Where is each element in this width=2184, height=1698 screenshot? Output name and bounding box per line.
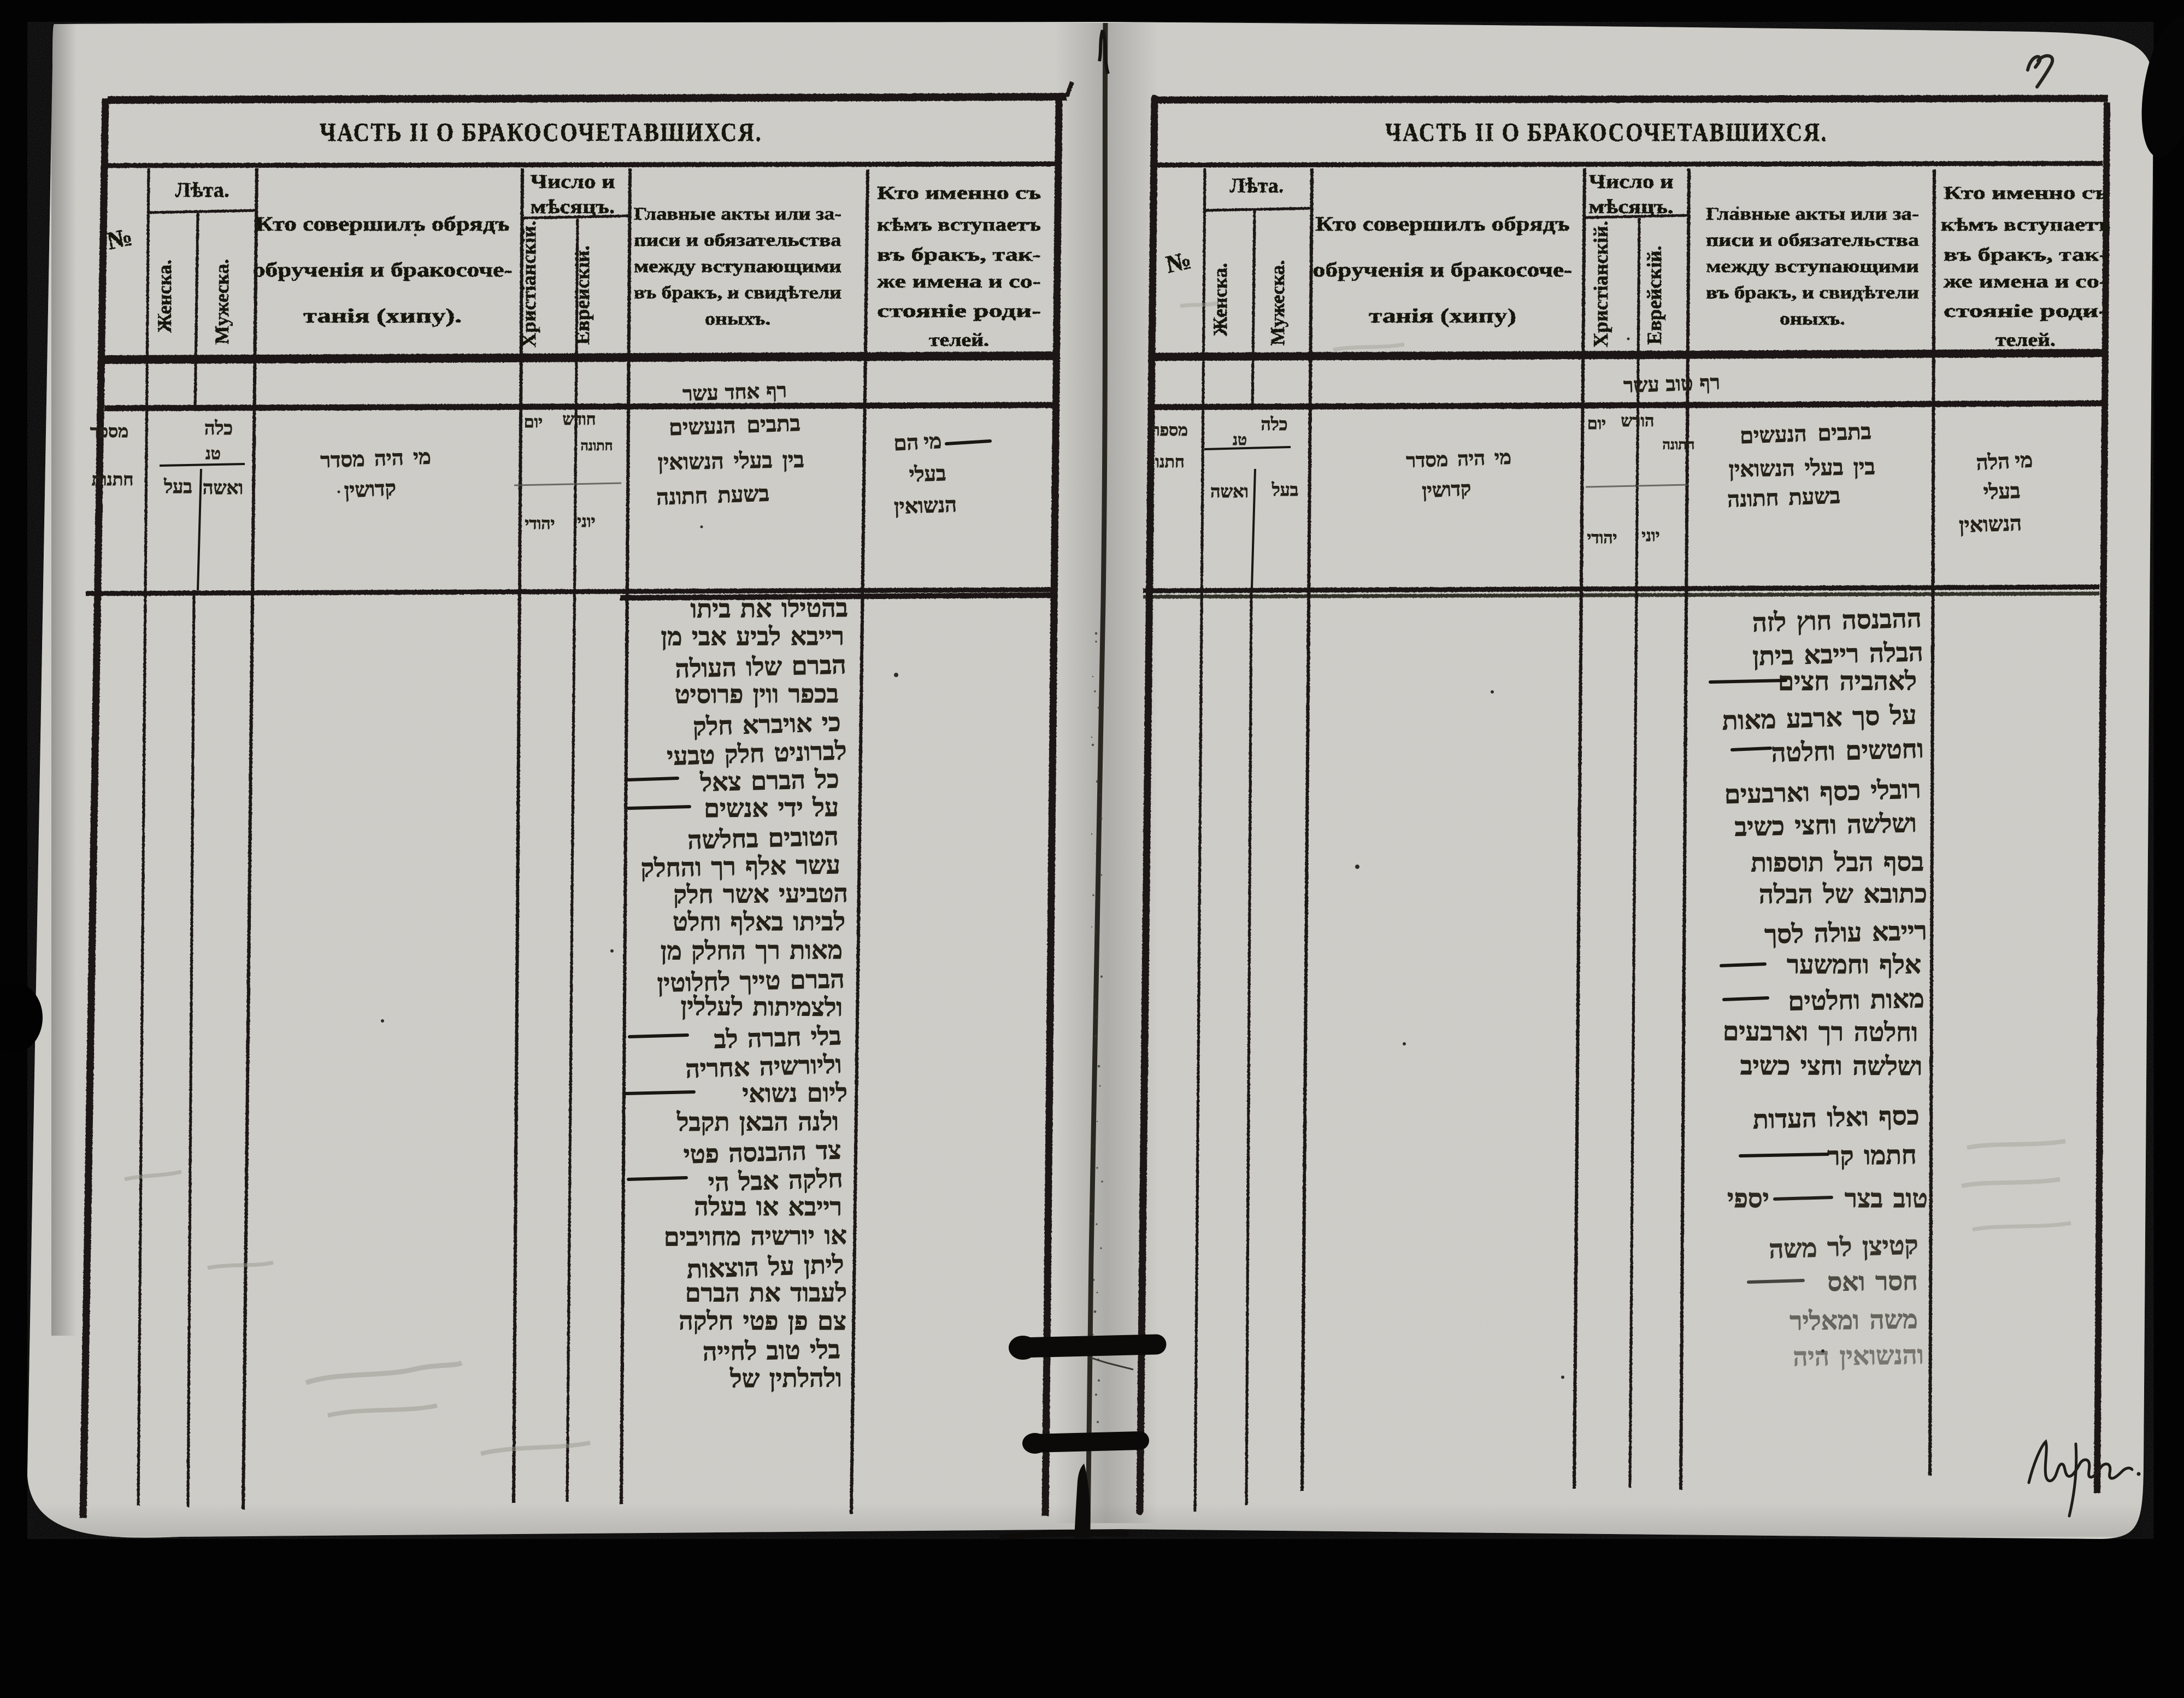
svg-text:כי אויברא חלק: כי אויברא חלק — [692, 708, 841, 741]
svg-text:Христіанскій.: Христіанскій. — [1590, 221, 1612, 348]
svg-text:בשעת חתונה: בשעת חתונה — [656, 481, 769, 509]
svg-text:בתבים הנעשים: בתבים הנעשים — [668, 411, 800, 440]
svg-text:לביתו באלף וחלט: לביתו באלף וחלט — [673, 908, 845, 936]
svg-text:כסף ואלו העדות: כסף ואלו העדות — [1752, 1102, 1920, 1135]
svg-text:между вступающими: между вступающими — [634, 257, 841, 277]
svg-text:танія (хипу): танія (хипу) — [1369, 305, 1516, 327]
svg-text:רובלי כסף וארבעים: רובלי כסף וארבעים — [1724, 775, 1921, 809]
svg-text:קדושין: קדושין — [1421, 478, 1471, 502]
svg-text:въ бракъ, и свидѣтели: въ бракъ, и свидѣтели — [634, 283, 841, 303]
svg-text:חתונה: חתונה — [1663, 438, 1695, 453]
svg-text:יהודי: יהודי — [1587, 529, 1617, 547]
svg-text:יספי: יספי — [1727, 1185, 1769, 1213]
svg-text:רייבא לביע אבי מן: רייבא לביע אבי מן — [661, 622, 844, 651]
svg-text:מאות רך החלק מן: מאות רך החלק מן — [661, 936, 843, 965]
svg-text:בלי טוב לחייה: בלי טוב לחייה — [703, 1336, 841, 1366]
svg-text:въ бракъ, так-: въ бракъ, так- — [1944, 245, 2108, 265]
svg-text:же имена и со-: же имена и со- — [1944, 272, 2108, 292]
svg-text:Лѣта.: Лѣта. — [1230, 174, 1284, 197]
svg-text:טוב בצר: טוב בצר — [1845, 1185, 1928, 1213]
svg-text:оныхъ.: оныхъ. — [1780, 309, 1845, 329]
svg-text:הורש: הורש — [1621, 412, 1655, 430]
svg-text:וחלטה רך וארבעים: וחלטה רך וארבעים — [1723, 1018, 1918, 1047]
svg-text:כלה: כלה — [1261, 414, 1287, 434]
svg-text:Христіанскій.: Христіанскій. — [518, 221, 540, 348]
svg-text:חתנו: חתנו — [1155, 453, 1184, 471]
svg-text:въ бракъ, и свидѣтели: въ бракъ, и свидѣтели — [1706, 283, 1919, 303]
svg-text:ЧАСТЬ II О БРАКОСОЧЕТАВШИХСЯ.: ЧАСТЬ II О БРАКОСОЧЕТАВШИХСЯ. — [1385, 118, 1828, 147]
svg-text:обрученія и бракосоче-: обрученія и бракосоче- — [253, 259, 513, 281]
svg-text:Мужеска.: Мужеска. — [1267, 260, 1288, 345]
svg-text:מספר: מספר — [90, 421, 128, 441]
svg-text:обрученія и бракосоче-: обрученія и бракосоче- — [1313, 259, 1573, 281]
svg-text:כתובא של הבלה: כתובא של הבלה — [1759, 880, 1927, 909]
svg-text:בעלי: בעלי — [1983, 480, 2021, 504]
svg-text:мѣсяцъ.: мѣсяцъ. — [1589, 196, 1674, 218]
svg-text:ואשה: ואשה — [1210, 481, 1249, 501]
svg-text:въ бракъ, так-: въ бракъ, так- — [877, 245, 1041, 265]
svg-text:חסר ואס: חסר ואס — [1827, 1267, 1918, 1297]
svg-text:Число и: Число и — [531, 171, 615, 192]
svg-text:בלי חברה לב: בלי חברה לב — [714, 1022, 841, 1054]
svg-text:יוני: יוני — [577, 513, 595, 531]
svg-text:ליום נשואי: ליום נשואי — [742, 1079, 847, 1108]
svg-text:וליורשיה אחריה: וליורשיה אחריה — [685, 1050, 843, 1083]
svg-text:על ידי אנשים: על ידי אנשים — [704, 794, 839, 822]
svg-text:טנ: טנ — [1233, 432, 1247, 449]
svg-text:Мужеска.: Мужеска. — [211, 259, 233, 344]
svg-text:между вступающими: между вступающими — [1706, 257, 1919, 277]
svg-text:ושלשה וחצי כשיב: ושלשה וחצי כשיב — [1740, 1052, 1922, 1081]
svg-text:משה ומאליר: משה ומאליר — [1789, 1306, 1918, 1336]
svg-text:Кто совершилъ обрядъ: Кто совершилъ обрядъ — [1316, 213, 1570, 236]
svg-text:יום: יום — [1587, 415, 1606, 433]
svg-text:לעבוד את הברם: לעבוד את הברם — [685, 1279, 847, 1307]
svg-text:חתונה: חתונה — [581, 439, 613, 454]
svg-text:оныхъ.: оныхъ. — [705, 309, 770, 329]
svg-text:הברם שלו העולה: הברם שלו העולה — [675, 651, 846, 683]
svg-text:הנשואין: הנשואין — [893, 493, 957, 519]
svg-text:צם פן פטי חלקה: צם פן פטי חלקה — [679, 1307, 846, 1335]
svg-text:הטובים בחלשה: הטובים בחלשה — [687, 822, 839, 854]
svg-text:בסף הבל תוספות: בסף הבל תוספות — [1751, 848, 1924, 878]
svg-text:Кто совершилъ обрядъ: Кто совершилъ обрядъ — [256, 213, 510, 236]
svg-text:Кто именно съ: Кто именно съ — [877, 183, 1041, 203]
svg-text:Женска.: Женска. — [154, 260, 175, 333]
svg-text:אלף וחמשער: אלף וחמשער — [1787, 951, 1921, 979]
svg-text:יום: יום — [524, 413, 543, 431]
svg-text:בשעת חתונה: בשעת חתונה — [1727, 483, 1840, 512]
svg-text:כל הברם צאל: כל הברם צאל — [699, 765, 839, 797]
svg-text:מי הם: מי הם — [893, 430, 943, 456]
svg-text:ולהלתין של: ולהלתין של — [729, 1364, 842, 1393]
svg-text:мѣсяцъ.: мѣсяцъ. — [531, 196, 615, 218]
svg-text:Лѣта.: Лѣта. — [175, 179, 229, 202]
svg-text:חודש: חודש — [562, 410, 596, 428]
svg-text:הנשואין: הנשואין — [1958, 512, 2022, 537]
svg-text:קטיצן לר משה: קטיצן לר משה — [1769, 1231, 1919, 1264]
svg-text:והנשואין היה: והנשואין היה — [1793, 1341, 1924, 1372]
svg-text:телей.: телей. — [929, 330, 989, 350]
svg-text:מי הלה: מי הלה — [1976, 449, 2034, 474]
svg-text:כלה: כלה — [204, 419, 233, 439]
svg-text:חלקה אבל הי: חלקה אבל הי — [708, 1165, 843, 1197]
svg-text:מי היה מסדר: מי היה מסדר — [1406, 446, 1512, 472]
svg-text:писи и обязательства: писи и обязательства — [1706, 231, 1919, 250]
svg-text:Еврейскій.: Еврейскій. — [572, 245, 594, 345]
svg-text:בכפר ווין פרוסיט: בכפר ווין פרוסיט — [675, 680, 839, 709]
svg-text:או יורשיה מחויבים: או יורשיה מחויבים — [664, 1221, 847, 1252]
svg-text:ההבנסה חוץ לזה: ההבנסה חוץ לזה — [1752, 604, 1922, 638]
svg-text:стояніе роди-: стояніе роди- — [1944, 301, 2108, 321]
svg-text:танія (хипу).: танія (хипу). — [303, 305, 462, 327]
svg-text:טנ: טנ — [205, 445, 221, 463]
svg-text:Женска.: Женска. — [1209, 263, 1231, 336]
svg-text:ולצמיתות לעללין: ולצמיתות לעללין — [680, 992, 843, 1021]
svg-text:Кто именно съ: Кто именно съ — [1944, 183, 2108, 203]
svg-text:רף טוב עשר: רף טוב עשר — [1623, 372, 1721, 397]
svg-text:חתנות: חתנות — [92, 469, 134, 489]
svg-text:писи и обязательства: писи и обязательства — [634, 231, 841, 250]
svg-text:מספר: מספר — [1152, 421, 1188, 439]
svg-text:בין בעלי הנשואין: בין בעלי הנשואין — [1728, 455, 1875, 482]
svg-text:בעל: בעל — [1271, 480, 1299, 500]
svg-text:רייבא עולה לסך: רייבא עולה לסך — [1764, 917, 1928, 949]
svg-text:מאות וחלטים: מאות וחלטים — [1788, 985, 1924, 1017]
svg-text:בהטילו את ביתו: בהטילו את ביתו — [690, 594, 848, 623]
svg-text:телей.: телей. — [1995, 330, 2056, 350]
svg-text:מי היה מסדר: מי היה מסדר — [320, 445, 432, 472]
svg-text:Еврейскій.: Еврейскій. — [1644, 245, 1666, 345]
svg-text:רייבא או בעלה: רייבא או בעלה — [694, 1193, 842, 1221]
svg-text:רף אחד עשר: רף אחד עשר — [682, 380, 787, 406]
svg-text:Число и: Число и — [1589, 171, 1674, 192]
svg-text:עשר אלף רך והחלק: עשר אלף רך והחלק — [640, 851, 840, 882]
svg-text:же имена и со-: же имена и со- — [877, 272, 1041, 292]
svg-text:הטביעי אשר חלק: הטביעי אשר חלק — [673, 879, 848, 909]
svg-text:стояніе роди-: стояніе роди- — [877, 301, 1041, 321]
svg-text:צד ההבנסה פטי: צד ההבנסה פטי — [683, 1136, 841, 1169]
svg-text:לאהביה חצים: לאהביה חצים — [1778, 667, 1917, 696]
svg-text:ЧАСТЬ II О БРАКОСОЧЕТАВШИХСЯ.: ЧАСТЬ II О БРАКОСОЧЕТАВШИХСЯ. — [320, 118, 762, 147]
svg-text:кѣмъ вступаетъ: кѣмъ вступаетъ — [877, 215, 1041, 235]
svg-text:кѣмъ вступаетъ: кѣмъ вступаетъ — [1941, 215, 2110, 235]
svg-text:Главные акты или за-: Главные акты или за- — [634, 204, 841, 224]
svg-text:בתבים הנעשים: בתבים הנעשים — [1739, 419, 1871, 448]
svg-text:קדושין: קדושין — [344, 477, 397, 503]
svg-text:בעלי: בעלי — [909, 462, 946, 486]
svg-text:ואשה: ואשה — [203, 478, 243, 498]
svg-text:בעל: בעל — [163, 477, 192, 497]
svg-text:ושלשה וחצי כשיב: ושלשה וחצי כשיב — [1734, 809, 1917, 842]
svg-text:יוני: יוני — [1641, 527, 1659, 545]
svg-text:חתמו קר: חתמו קר — [1827, 1141, 1917, 1171]
svg-text:בין בעלי הנשואין: בין בעלי הנשואין — [657, 448, 804, 475]
svg-text:הבלה רייבא ביתן: הבלה רייבא ביתן — [1752, 638, 1924, 671]
svg-text:יהודי: יהודי — [525, 515, 555, 533]
svg-text:וחטשים וחלטה: וחטשים וחלטה — [1771, 735, 1924, 768]
svg-text:ולנה הבאן תקבל: ולנה הבאן תקבל — [676, 1108, 839, 1136]
